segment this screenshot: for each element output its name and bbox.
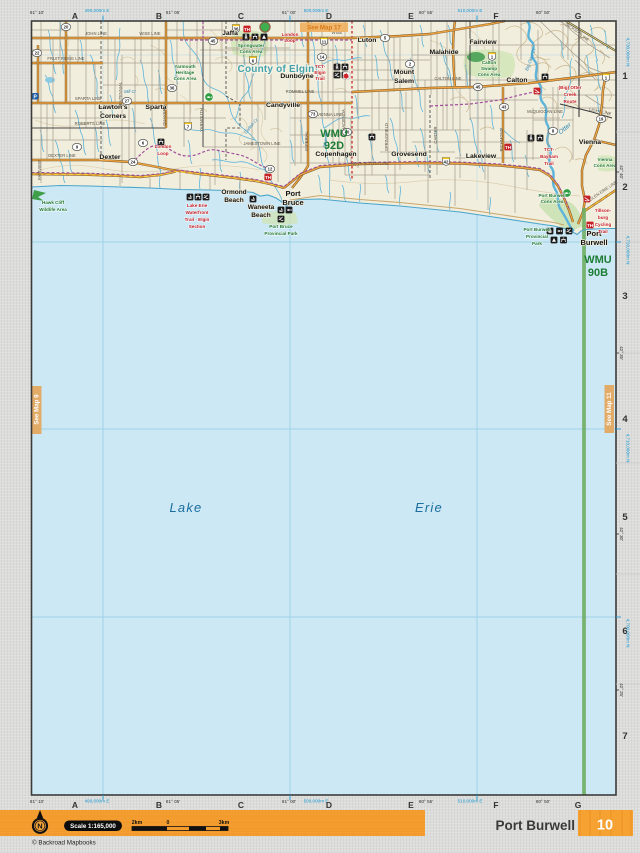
svg-text:TCT-: TCT-: [544, 147, 555, 152]
svg-text:Malahide: Malahide: [429, 49, 458, 56]
svg-text:Port Burwell: Port Burwell: [538, 193, 565, 198]
svg-text:19: 19: [599, 117, 604, 122]
svg-text:20: 20: [64, 25, 69, 30]
svg-text:CALTON LINE: CALTON LINE: [434, 76, 461, 81]
svg-text:Dexter: Dexter: [99, 154, 121, 161]
svg-text:73: 73: [311, 112, 316, 117]
svg-text:Calton: Calton: [506, 77, 527, 84]
svg-text:Beach: Beach: [224, 197, 244, 204]
svg-text:3: 3: [622, 291, 627, 302]
svg-text:Hawk Cliff: Hawk Cliff: [42, 200, 65, 205]
svg-text:Creek: Creek: [564, 92, 577, 97]
svg-text:© Backroad Mapbooks: © Backroad Mapbooks: [32, 839, 96, 847]
svg-text:Port Bruce: Port Bruce: [269, 224, 293, 229]
svg-text:G: G: [575, 11, 582, 21]
svg-text:Springwater: Springwater: [238, 43, 265, 48]
svg-text:Waterfront: Waterfront: [185, 210, 209, 215]
svg-text:Cons Area: Cons Area: [541, 199, 564, 204]
svg-text:2km: 2km: [132, 820, 143, 826]
svg-text:42° 40': 42° 40': [619, 165, 624, 179]
svg-text:Cycling: Cycling: [595, 222, 612, 227]
svg-text:10: 10: [597, 818, 613, 834]
svg-text:Wildlife Area: Wildlife Area: [39, 207, 67, 212]
svg-text:Port Burwell: Port Burwell: [523, 227, 550, 232]
svg-text:81° 10': 81° 10': [30, 799, 44, 804]
svg-text:DEXTER LINE: DEXTER LINE: [48, 153, 76, 158]
svg-text:81° 05': 81° 05': [166, 10, 180, 15]
svg-text:E: E: [408, 11, 414, 21]
svg-text:Yarmouth: Yarmouth: [174, 64, 195, 69]
svg-text:Heritage: Heritage: [176, 70, 195, 75]
svg-text:80° 55': 80° 55': [419, 799, 433, 804]
svg-text:SPARTA LINE: SPARTA LINE: [75, 96, 102, 101]
svg-text:0: 0: [167, 820, 170, 826]
svg-text:Park: Park: [532, 241, 542, 246]
svg-text:Loop: Loop: [157, 151, 168, 156]
svg-text:80° 50': 80° 50': [536, 10, 550, 15]
svg-text:Trail: Trail: [544, 161, 553, 166]
svg-text:81° 10': 81° 10': [30, 10, 44, 15]
svg-text:WISE LINE: WISE LINE: [139, 31, 160, 36]
svg-text:Cons Area: Cons Area: [174, 76, 197, 81]
svg-text:Trail - Elgin: Trail - Elgin: [185, 217, 210, 222]
svg-text:B: B: [156, 11, 162, 21]
svg-text:McQUIGGAN LINE: McQUIGGAN LINE: [527, 109, 563, 114]
svg-text:Cons Area: Cons Area: [478, 72, 501, 77]
svg-text:3km: 3km: [219, 820, 230, 826]
svg-text:Trail: Trail: [315, 76, 324, 81]
svg-text:SPRINGFIELD: SPRINGFIELD: [384, 123, 389, 151]
svg-text:Route: Route: [563, 99, 576, 104]
svg-text:4,710,000m N: 4,710,000m N: [626, 434, 631, 463]
svg-text:Candyville: Candyville: [266, 102, 300, 109]
svg-text:London: London: [155, 144, 172, 149]
svg-text:burg: burg: [598, 215, 608, 220]
svg-text:See Map 11: See Map 11: [606, 392, 613, 426]
svg-text:C: C: [238, 800, 244, 810]
svg-text:D: D: [326, 800, 332, 810]
svg-text:Cons Area: Cons Area: [594, 163, 617, 168]
svg-text:Lake: Lake: [170, 500, 203, 515]
svg-text:Mill Cr: Mill Cr: [124, 89, 136, 94]
svg-text:Jaffa: Jaffa: [222, 30, 238, 37]
svg-text:12: 12: [268, 167, 273, 172]
svg-text:N: N: [37, 822, 42, 831]
svg-text:F: F: [493, 800, 498, 810]
svg-text:Section: Section: [189, 224, 206, 229]
svg-text:HACIENDA: HACIENDA: [341, 109, 346, 131]
svg-text:Grovesend: Grovesend: [391, 151, 427, 158]
svg-text:42° 35': 42° 35': [619, 346, 624, 360]
svg-text:Fairview: Fairview: [469, 39, 497, 46]
svg-text:42° 25': 42° 25': [619, 683, 624, 697]
svg-text:Provincial Park: Provincial Park: [264, 231, 298, 236]
svg-text:RICHMOND: RICHMOND: [499, 128, 504, 151]
svg-text:1: 1: [622, 71, 628, 82]
svg-text:500,000m E: 500,000m E: [304, 799, 329, 804]
svg-text:JOHN LINE: JOHN LINE: [85, 31, 107, 36]
svg-text:Trail: Trail: [598, 229, 607, 234]
svg-text:Copenhagen: Copenhagen: [315, 151, 356, 158]
svg-text:14: 14: [320, 55, 325, 60]
svg-text:C: C: [238, 11, 244, 21]
svg-text:WMU: WMU: [584, 254, 612, 266]
svg-text:Swamp: Swamp: [481, 66, 497, 71]
svg-text:510,000m E: 510,000m E: [458, 8, 483, 13]
svg-text:Erie: Erie: [415, 500, 443, 515]
svg-text:4,730,000m N: 4,730,000m N: [626, 38, 631, 67]
svg-text:CENTENNIAL: CENTENNIAL: [118, 81, 123, 108]
svg-text:Lawton's: Lawton's: [98, 104, 127, 111]
svg-text:ROBERTS LINE: ROBERTS LINE: [75, 121, 106, 126]
svg-text:D: D: [326, 11, 332, 21]
svg-text:B: B: [156, 800, 162, 810]
svg-text:Elgin: Elgin: [314, 70, 325, 75]
svg-text:See Map 17: See Map 17: [307, 25, 341, 32]
svg-text:E: E: [408, 800, 414, 810]
svg-text:45: 45: [211, 39, 216, 44]
svg-text:Tillson-: Tillson-: [595, 208, 612, 213]
svg-text:Provincial: Provincial: [526, 234, 548, 239]
svg-text:Bayham: Bayham: [540, 154, 558, 159]
svg-text:Dunboyne: Dunboyne: [280, 73, 313, 80]
svg-text:G: G: [575, 800, 582, 810]
svg-text:ROMMEL LINE: ROMMEL LINE: [286, 89, 315, 94]
svg-text:(Big) Otter: (Big) Otter: [559, 85, 582, 90]
svg-text:Calton: Calton: [482, 60, 496, 65]
svg-text:4: 4: [622, 414, 628, 425]
svg-text:TH: TH: [244, 27, 251, 32]
svg-text:27: 27: [125, 99, 130, 104]
svg-text:IMPERIAL: IMPERIAL: [304, 131, 309, 151]
svg-text:Beach: Beach: [251, 212, 271, 219]
svg-text:510,000m E: 510,000m E: [458, 799, 483, 804]
svg-text:Burwell: Burwell: [580, 238, 607, 247]
svg-text:Port Burwell: Port Burwell: [495, 818, 575, 833]
svg-text:43: 43: [502, 105, 507, 110]
svg-text:24: 24: [131, 160, 136, 165]
svg-text:Scale 1:165,000: Scale 1:165,000: [70, 823, 116, 830]
svg-text:Bruce: Bruce: [282, 198, 303, 207]
svg-text:Cons Area: Cons Area: [240, 49, 263, 54]
svg-text:81° 00': 81° 00': [282, 799, 296, 804]
svg-text:81° 00': 81° 00': [282, 10, 296, 15]
svg-text:Loop: Loop: [284, 38, 295, 43]
svg-text:VIENNA LINE: VIENNA LINE: [317, 112, 343, 117]
svg-text:QUAKER: QUAKER: [162, 108, 167, 126]
svg-text:Vienna: Vienna: [579, 139, 601, 146]
svg-text:500,000m E: 500,000m E: [304, 8, 329, 13]
svg-text:Ormond: Ormond: [221, 189, 246, 196]
svg-text:CARTER: CARTER: [433, 126, 438, 143]
svg-text:TH: TH: [587, 223, 594, 228]
svg-text:Mount: Mount: [394, 69, 415, 76]
svg-text:80° 50': 80° 50': [536, 799, 550, 804]
svg-text:TH: TH: [265, 175, 272, 180]
svg-text:Vienna: Vienna: [598, 157, 613, 162]
svg-text:45: 45: [476, 85, 481, 90]
svg-text:7: 7: [622, 731, 627, 742]
svg-text:YARMOUTH: YARMOUTH: [199, 108, 204, 132]
svg-text:TH: TH: [505, 145, 512, 150]
svg-text:Corners: Corners: [100, 113, 126, 120]
svg-text:FAIRVIEW: FAIRVIEW: [37, 160, 42, 180]
svg-text:NOVA SCOTIA LINE: NOVA SCOTIA LINE: [351, 161, 390, 166]
svg-text:90B: 90B: [588, 267, 608, 279]
svg-text:Lake Erie: Lake Erie: [187, 203, 208, 208]
svg-text:490,000m E: 490,000m E: [85, 799, 110, 804]
svg-text:22: 22: [35, 51, 40, 56]
svg-text:490,000m E: 490,000m E: [85, 8, 110, 13]
svg-text:42° 30': 42° 30': [619, 527, 624, 541]
svg-text:4,700,000m N: 4,700,000m N: [626, 619, 631, 648]
svg-text:Lakeview: Lakeview: [466, 153, 497, 160]
svg-text:London: London: [282, 32, 299, 37]
svg-text:4,720,000m N: 4,720,000m N: [626, 236, 631, 265]
svg-text:2: 2: [622, 182, 627, 193]
svg-text:36: 36: [170, 86, 175, 91]
svg-text:42: 42: [444, 159, 449, 164]
svg-text:Salem: Salem: [394, 78, 414, 85]
svg-text:11: 11: [322, 39, 327, 44]
svg-text:81° 05': 81° 05': [166, 799, 180, 804]
svg-text:Port: Port: [286, 189, 302, 198]
svg-text:F: F: [493, 11, 498, 21]
svg-text:A: A: [72, 11, 78, 21]
svg-text:A: A: [72, 800, 78, 810]
svg-text:FRUIT RIDGE LINE: FRUIT RIDGE LINE: [47, 56, 84, 61]
svg-text:Waneeta: Waneeta: [248, 204, 275, 211]
svg-text:Luton: Luton: [358, 37, 377, 44]
svg-text:TCT-: TCT-: [315, 64, 326, 69]
svg-text:JAMESTOWN LINE: JAMESTOWN LINE: [243, 141, 280, 146]
svg-text:See Map 9: See Map 9: [34, 394, 41, 425]
svg-text:80° 55': 80° 55': [419, 10, 433, 15]
svg-text:5: 5: [622, 512, 628, 523]
